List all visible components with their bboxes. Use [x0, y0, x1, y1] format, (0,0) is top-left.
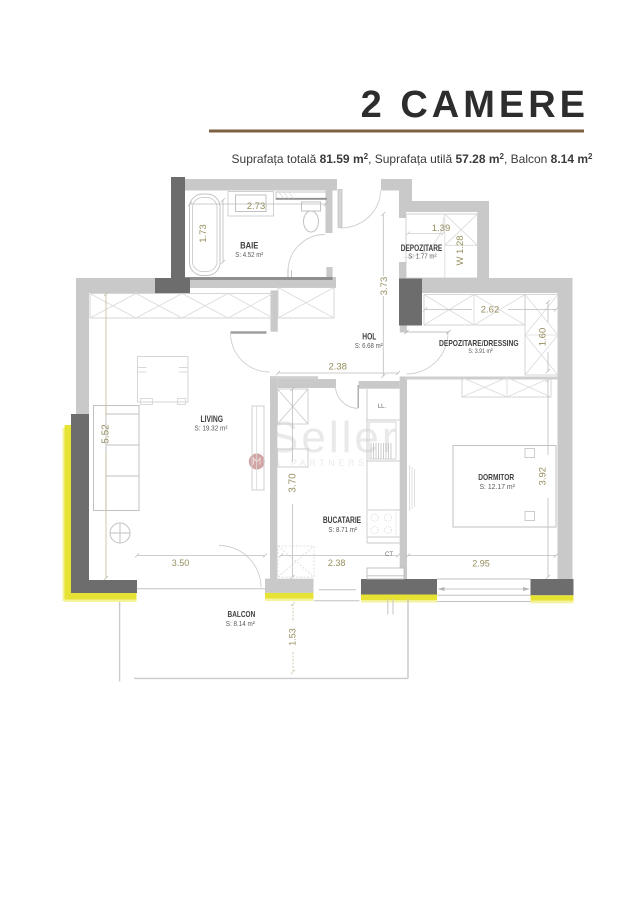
svg-text:1.60: 1.60	[538, 328, 549, 347]
svg-text:S: 8.14 m²: S: 8.14 m²	[226, 621, 256, 628]
svg-text:DEPOZITARE/DRESSING: DEPOZITARE/DRESSING	[439, 338, 519, 348]
svg-text:1.73: 1.73	[198, 224, 209, 243]
svg-text:2 CAMERE: 2 CAMERE	[361, 84, 589, 126]
svg-text:1.53: 1.53	[287, 628, 297, 646]
svg-text:S: 8.71 m²: S: 8.71 m²	[328, 525, 357, 534]
svg-text:2.73: 2.73	[247, 201, 266, 212]
svg-text:S: 3.91 m²: S: 3.91 m²	[468, 348, 493, 355]
svg-text:2.62: 2.62	[481, 304, 500, 315]
svg-text:BALCON: BALCON	[228, 609, 256, 619]
svg-text:W 1.28: W 1.28	[455, 235, 466, 265]
svg-text:3.70: 3.70	[288, 473, 299, 493]
svg-text:1.39: 1.39	[432, 223, 451, 234]
svg-text:S: 6.68 m²: S: 6.68 m²	[355, 341, 384, 350]
svg-text:2.38: 2.38	[328, 362, 347, 373]
svg-text:BUCATARIE: BUCATARIE	[323, 515, 361, 525]
svg-text:BAIE: BAIE	[240, 240, 258, 250]
svg-text:5.52: 5.52	[101, 424, 112, 444]
svg-text:CT: CT	[385, 552, 393, 558]
svg-text:Suprafața totală 81.59 m2, Sup: Suprafața totală 81.59 m2, Suprafața uti…	[232, 152, 594, 166]
svg-text:S: 1.77 m²: S: 1.77 m²	[408, 252, 437, 261]
svg-text:3.92: 3.92	[538, 467, 549, 486]
svg-text:DORMITOR: DORMITOR	[478, 473, 514, 482]
svg-text:2.38: 2.38	[328, 558, 346, 568]
svg-text:S: 12.17 m²: S: 12.17 m²	[479, 482, 515, 491]
svg-text:S: 4.52 m²: S: 4.52 m²	[235, 250, 264, 259]
svg-text:2.95: 2.95	[472, 559, 490, 569]
svg-text:HOL: HOL	[362, 331, 376, 341]
svg-text:S: 19.32 m²: S: 19.32 m²	[195, 423, 228, 432]
svg-text:3.73: 3.73	[379, 277, 390, 296]
svg-text:LL.: LL.	[378, 404, 387, 410]
svg-text:3.50: 3.50	[172, 558, 190, 568]
